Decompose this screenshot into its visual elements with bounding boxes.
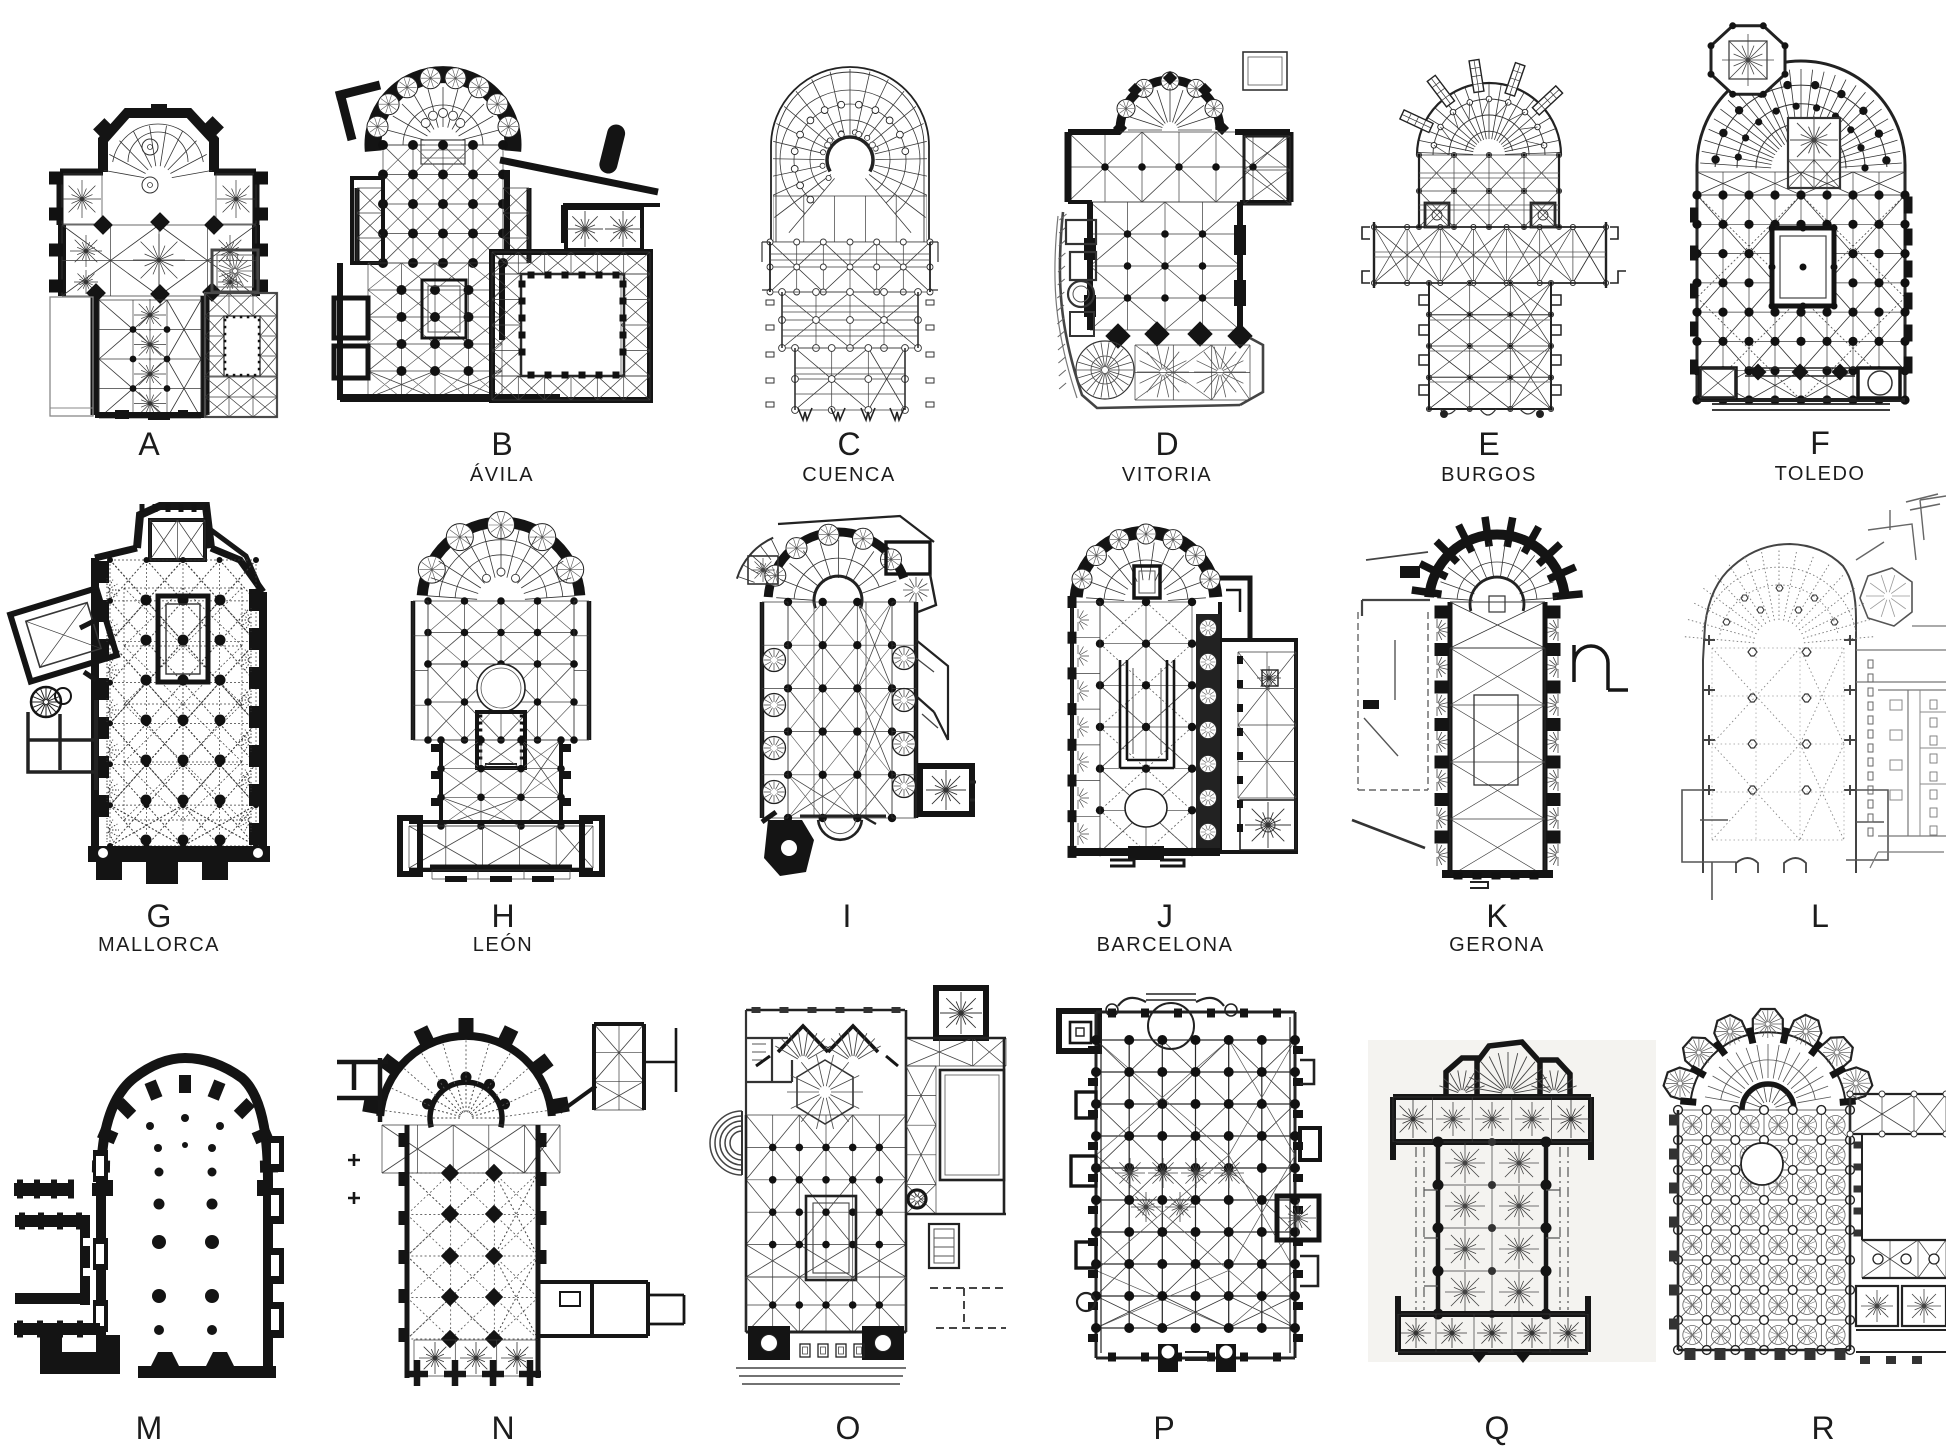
svg-text:P: P <box>1153 1410 1174 1446</box>
svg-text:O: O <box>836 1410 861 1446</box>
svg-text:H: H <box>491 898 514 934</box>
svg-text:GERONA: GERONA <box>1449 934 1545 956</box>
svg-text:G: G <box>147 898 172 934</box>
svg-text:R: R <box>1811 1410 1834 1446</box>
svg-text:M: M <box>136 1410 163 1446</box>
svg-text:J: J <box>1157 898 1173 934</box>
svg-text:Q: Q <box>1485 1410 1510 1446</box>
svg-text:N: N <box>491 1410 514 1446</box>
svg-text:CUENCA: CUENCA <box>802 464 895 486</box>
svg-text:D: D <box>1155 426 1178 462</box>
svg-text:E: E <box>1478 426 1499 462</box>
svg-text:VITORIA: VITORIA <box>1122 464 1212 486</box>
svg-text:BARCELONA: BARCELONA <box>1097 934 1234 956</box>
svg-text:F: F <box>1810 425 1830 461</box>
svg-text:TOLEDO: TOLEDO <box>1775 463 1866 485</box>
svg-text:LEÓN: LEÓN <box>473 933 533 956</box>
svg-text:ÁVILA: ÁVILA <box>470 463 534 486</box>
svg-text:K: K <box>1486 898 1507 934</box>
svg-text:C: C <box>837 426 860 462</box>
svg-text:MALLORCA: MALLORCA <box>98 934 220 956</box>
svg-text:B: B <box>491 426 512 462</box>
svg-text:L: L <box>1811 898 1829 934</box>
svg-text:A: A <box>138 426 160 462</box>
svg-text:I: I <box>843 898 852 934</box>
svg-text:BURGOS: BURGOS <box>1441 464 1537 486</box>
